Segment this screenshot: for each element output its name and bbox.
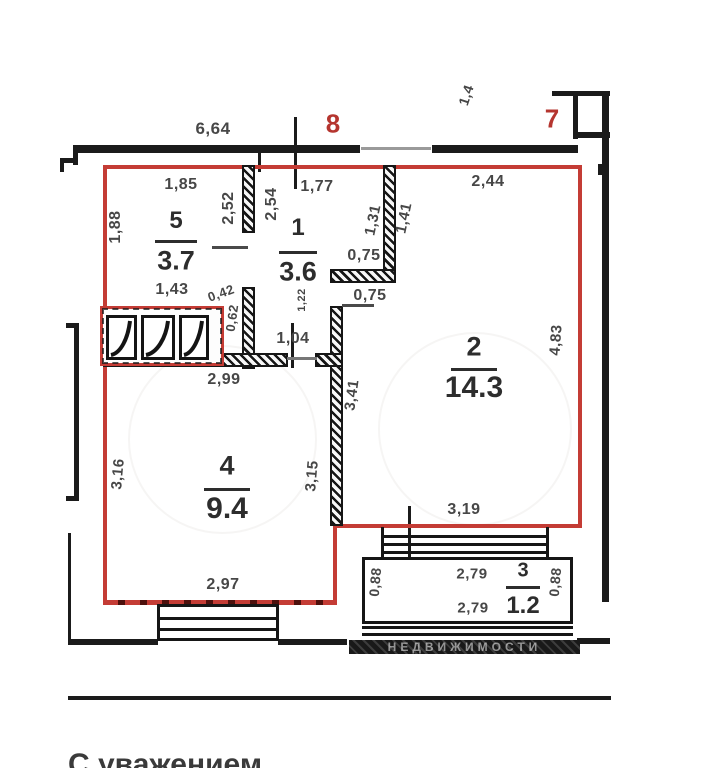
dimension-label: 3,19 [447,501,480,519]
dimension-label: 6,64 [195,119,230,139]
room-number-underline [279,251,317,254]
axis-marker: 7 [545,104,559,135]
red-outline-right [578,165,582,528]
window-balcony-line [382,551,549,554]
dimension-label: 3,16 [108,458,128,491]
window-balcony-left-jamb [381,527,384,559]
room-area: 14.3 [445,371,503,405]
dimension-label: 1,43 [155,281,188,299]
room-number: 4 [219,451,234,482]
partition-hall-room4-right [315,353,343,367]
left-bracket-bottom-tick [66,496,75,501]
dimension-label: 2,99 [207,371,240,389]
dimension-label: 2,79 [456,566,487,583]
partition-hall-room2-corner [330,269,396,283]
dimension-label: 2,54 [263,187,281,220]
dimension-label: 1,88 [107,210,125,243]
dimension-label: 0,42 [206,281,237,304]
baseline-right [577,638,610,644]
room-area: 3.7 [157,246,195,277]
room-number-underline [204,488,250,491]
dimension-label: 1,77 [300,178,333,196]
dimension-label: 2,52 [220,191,238,224]
dimension-label: 1,85 [164,176,197,194]
partition-room2-room4 [330,306,343,526]
axis-marker: 8 [326,109,340,140]
left-bracket [74,323,79,501]
red-outline-mid-vertical [333,524,337,605]
partition-room5-upper [242,165,255,233]
dimension-label: 0,88 [366,567,384,598]
left-bracket-top-tick [66,323,75,328]
dimension-label: 0,88 [546,567,564,598]
room-number: 5 [169,207,182,235]
baseline-mid [278,639,347,645]
wall-top-main [73,145,578,153]
red-outline-room2-bottom [333,524,582,528]
dimension-label: 3,41 [341,378,362,411]
closet-cell [106,315,137,360]
bottom-rule [68,696,611,700]
window-balcony-line [382,543,549,546]
dimension-label: 2,44 [471,173,504,191]
watermark-strip-text: НЕДВИЖИМОСТИ [388,640,542,654]
room-number-underline [506,586,540,589]
closet-cell [141,315,175,360]
dimension-label: 1,31 [361,203,384,237]
balcony-hatch-strip: НЕДВИЖИМОСТИ [349,640,580,654]
dimension-label: 4,83 [546,324,565,356]
dimension-label: 0,62 [223,303,242,332]
room-area: 9.4 [206,492,248,526]
balcony-rail-line [362,626,573,629]
wall-right-nub [598,164,606,175]
window-room4-mullion [160,617,276,620]
door-swing-arc [182,318,206,357]
door-line-room4 [287,357,317,360]
room-number-underline [155,240,197,243]
dimension-label: 1,4 [455,83,477,108]
dimension-label: 2,97 [206,576,239,594]
bottom-note: С уважением [68,748,262,768]
balcony-rail-line [362,633,573,636]
window-room4 [157,604,279,641]
dimension-label: 1,04 [276,330,309,348]
room-number: 2 [466,332,481,363]
baseline-left [68,639,158,645]
red-outline-top [103,165,582,169]
dimension-label: 2,79 [457,600,488,617]
dimension-label: 0,75 [353,287,386,305]
dimension-label: 1,22 [296,288,308,311]
window-balcony-right-jamb [546,527,549,559]
floorplan-canvas: НЕДВИЖИМОСТИ 87 6,641,41,852,522,541,772… [0,0,713,768]
wall-left-lower [68,533,71,643]
axis-line-8 [294,117,297,189]
door-swing-arc [144,318,172,357]
dimension-label: 3,15 [302,460,322,493]
room-number: 3 [517,560,528,583]
closet-cell [179,315,209,360]
window-balcony-line [382,535,549,538]
room-area: 3.6 [279,257,317,288]
door-line-room5 [212,246,248,249]
room-area: 1.2 [506,592,539,620]
door-swing-arc [109,318,134,357]
window-room4-mullion [160,628,276,631]
room-number: 1 [291,214,304,242]
entrance-opening-line [361,147,431,150]
dimension-label: 0,75 [347,247,380,265]
wall-top-step-end [60,158,64,172]
